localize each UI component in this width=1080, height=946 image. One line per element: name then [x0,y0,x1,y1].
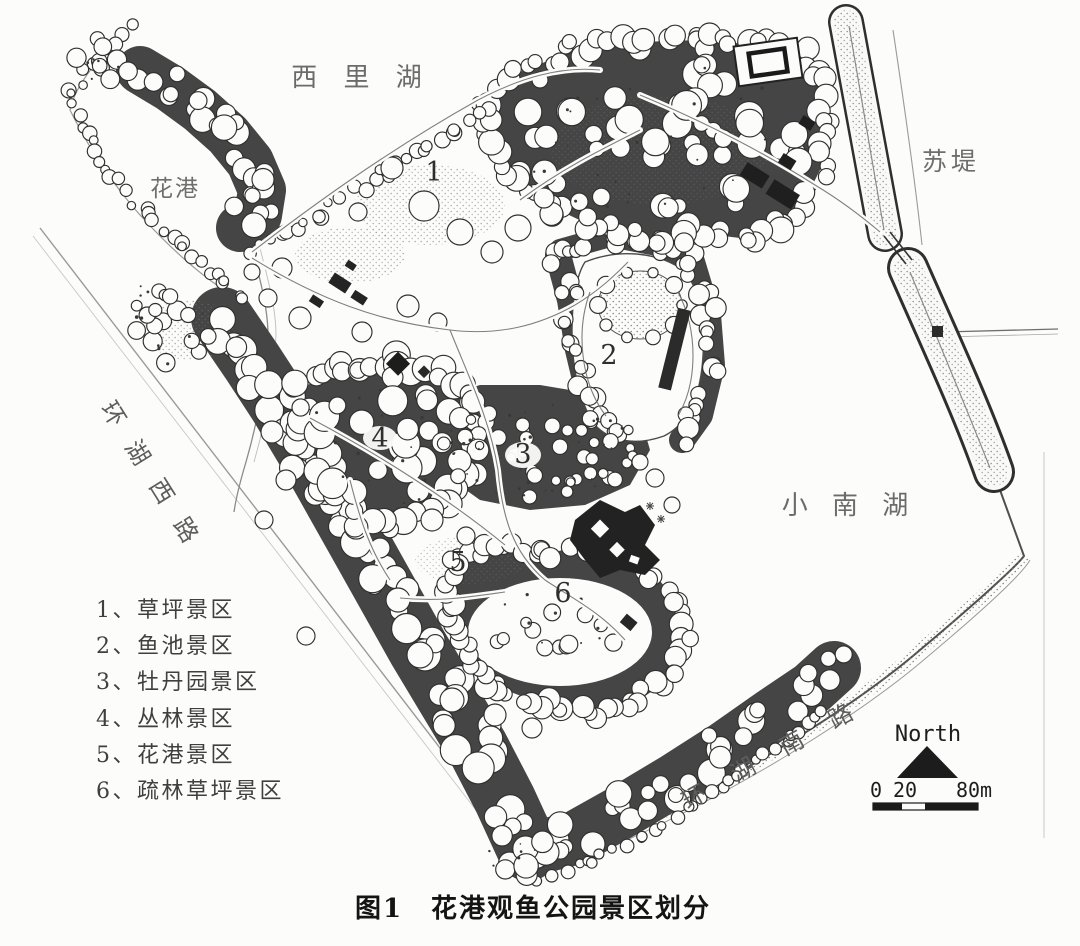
zone-marker-1: 1 [425,157,442,188]
scale-tick-0: 0 [870,778,882,802]
legend-item-4: 4、丛林景区 [96,707,235,732]
legend: 1、草坪景区 2、鱼池景区 3、牡丹园景区 4、丛林景区 5、花港景区 6、疏林… [96,598,284,804]
compass: North [895,722,961,778]
huagang-label: 花港 [150,176,200,202]
ring-west-road-label: 环 湖 西 路 [95,396,208,553]
zone-marker-4: 4 [371,423,388,454]
xili-lake-label: 西 里 湖 [291,63,431,93]
zone-marker-2: 2 [600,340,617,371]
legend-item-2: 2、鱼池景区 [96,634,235,659]
xiaonan-lake-label: 小 南 湖 [782,491,917,521]
north-label: North [895,722,961,747]
zone-marker-3: 3 [514,439,531,470]
north-arrow-icon [897,746,958,778]
rect-pond [734,38,803,87]
scale-tick-20: 20 [893,778,917,802]
figure-page: 西 里 湖 苏堤 花港 小 南 湖 环 湖 西 路 环 湖 南 路 1 2 3 … [0,0,1080,946]
legend-item-5: 5、花港景区 [96,743,235,768]
scale-bar-seg2 [925,803,978,810]
legend-item-6: 6、疏林草坪景区 [96,779,284,804]
figure-caption: 图1 花港观鱼公园景区划分 [355,894,711,924]
scale-tick-80m: 80m [956,778,992,802]
scale-bar-seg1 [873,803,902,810]
zone-marker-6: 6 [554,578,571,609]
su-causeway-label: 苏堤 [922,147,980,176]
scale-bar: 0 20 80m [870,778,992,810]
zone-marker-5: 5 [449,547,466,578]
legend-item-3: 3、牡丹园景区 [96,670,260,695]
legend-item-1: 1、草坪景区 [96,598,235,623]
park-map: 西 里 湖 苏堤 花港 小 南 湖 环 湖 西 路 环 湖 南 路 1 2 3 … [0,0,1080,946]
su-causeway [846,22,994,472]
